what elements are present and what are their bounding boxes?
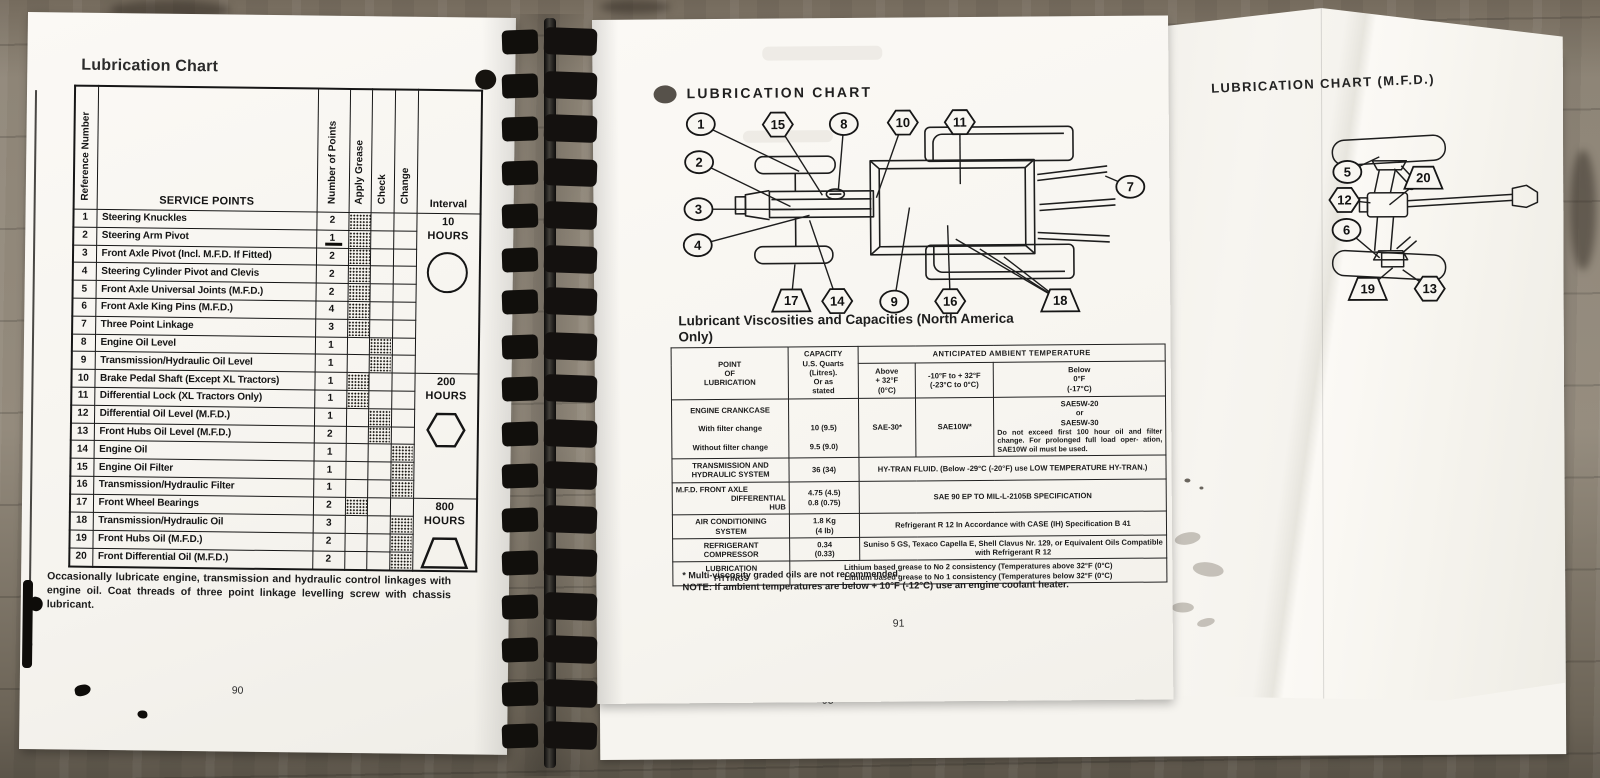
halftone-pattern — [349, 214, 370, 229]
check-cell — [370, 230, 393, 248]
callout-number-12: 12 — [1337, 192, 1352, 207]
number-of-points-cell: 4 — [315, 301, 347, 319]
callout-number-16: 16 — [943, 294, 958, 309]
halftone-pattern — [348, 321, 369, 336]
halftone-pattern — [348, 303, 369, 318]
binding-loop-left — [502, 637, 539, 662]
interval-cell: 200HOURS — [413, 373, 479, 498]
check-cell — [370, 213, 393, 231]
text-line: HYDRAULIC SYSTEM — [676, 470, 786, 480]
axle-callouts: 5201261913 — [1329, 157, 1445, 301]
paper-fold-crease — [1321, 8, 1324, 708]
text-line: Without filter change — [675, 442, 785, 452]
change-cell — [391, 373, 414, 391]
halftone-pattern — [390, 535, 411, 550]
check-cell — [367, 462, 390, 480]
col-header-reference-number: Reference Number — [74, 86, 99, 210]
lubricant-spec-cell: SAE 90 EP TO MIL-L-2105B SPECIFICATION — [859, 479, 1166, 514]
check-cell — [367, 515, 390, 533]
interval-cell: 800HOURS — [412, 498, 477, 571]
capacity-cell: 36 (34) — [789, 458, 859, 482]
capacities-table-wrap: POINTOFLUBRICATIONCAPACITYU.S. Quarts(Li… — [671, 344, 1168, 587]
check-cell — [369, 337, 392, 355]
photo-of-open-manual: { "left_page": { "title": "Lubrication C… — [0, 0, 1600, 778]
callout-number-19: 19 — [1360, 281, 1375, 296]
text-line: COMPRESSOR — [676, 550, 786, 560]
change-cell — [390, 516, 413, 534]
binding-loop — [502, 159, 598, 187]
left-page-footnote: Occasionally lubricate engine, transmiss… — [47, 570, 451, 617]
col-header-capacity: CAPACITYU.S. Quarts(Litres).Or asstated — [788, 346, 858, 399]
binding-loop — [502, 680, 598, 708]
callout-number-10: 10 — [896, 115, 911, 130]
binding-loop — [502, 202, 598, 230]
stain-speck — [1184, 478, 1190, 482]
binding-loop-left — [502, 595, 539, 620]
halftone-pattern — [370, 339, 391, 354]
grease-cell — [345, 462, 367, 480]
interval-circle-symbol — [427, 252, 468, 293]
text-line: 10 (9.5) — [792, 423, 855, 433]
change-cell — [390, 498, 413, 516]
halftone-pattern — [390, 553, 411, 568]
ref-number-cell: 15 — [70, 458, 93, 476]
grease-cell — [348, 212, 370, 230]
change-cell — [392, 355, 415, 373]
service-points-table-wrap: Reference Number SERVICE POINTS Number o… — [68, 85, 483, 573]
text-line: (0.33) — [793, 549, 856, 559]
cap-row: M.F.D. FRONT AXLEDIFFERENTIALHUB4.75 (4.… — [672, 479, 1166, 516]
manual-page-90: Lubrication Chart Reference Number SERVI… — [19, 12, 516, 755]
ref-number-cell: 17 — [70, 494, 93, 512]
binding-loop — [502, 506, 598, 534]
ref-number-cell: 10 — [71, 369, 94, 387]
service-points-table: Reference Number SERVICE POINTS Number o… — [68, 85, 483, 573]
leader-line — [698, 215, 810, 245]
binding-loop — [502, 722, 598, 750]
spiral-binding — [496, 14, 606, 776]
number-of-points-cell: 1 — [315, 354, 347, 372]
binding-loop-left — [502, 724, 539, 749]
grease-cell — [346, 408, 368, 426]
number-of-points-cell: 1 — [313, 461, 345, 479]
number-of-points-cell: 2 — [316, 265, 348, 283]
text-line: CAPACITY — [792, 349, 855, 359]
stain — [1172, 602, 1194, 612]
change-cell — [392, 320, 415, 338]
lubrication-point-cell: M.F.D. FRONT AXLEDIFFERENTIALHUB — [672, 482, 789, 516]
cap-row: ENGINE CRANKCASE With filter change With… — [671, 396, 1165, 459]
number-of-points-cell: 1 — [314, 390, 346, 408]
binding-loop-left — [502, 681, 539, 706]
page-number-90: 90 — [232, 685, 244, 697]
wood-knot — [600, 0, 670, 14]
col-header-apply-grease: Apply Grease — [349, 89, 373, 213]
change-cell — [391, 427, 414, 445]
binding-loop-left — [502, 463, 539, 488]
binding-loop — [502, 420, 598, 448]
lubrication-point-cell: TRANSMISSION ANDHYDRAULIC SYSTEM — [672, 458, 789, 482]
binding-loop-left — [502, 421, 539, 446]
foldout-title: LUBRICATION CHART (M.F.D.) — [1211, 71, 1435, 95]
interval-value: 10 — [417, 217, 480, 229]
ink-blot — [74, 683, 92, 697]
binding-loop-right — [544, 505, 598, 534]
number-of-points-cell: 2 — [315, 283, 347, 301]
halftone-pattern — [349, 232, 370, 247]
page-title: Lubrication Chart — [81, 57, 218, 77]
ref-number-cell: 20 — [69, 548, 92, 567]
number-of-points-cell: 2 — [312, 551, 344, 570]
callout-number-13: 13 — [1422, 281, 1437, 296]
check-cell — [367, 480, 390, 498]
text-line: -10°F to + 32°F — [919, 371, 990, 381]
capacity-cell: 1.8 Kg(4 lb) — [789, 514, 859, 538]
binding-loop-right — [544, 27, 598, 56]
ref-number-cell: 13 — [71, 423, 94, 441]
callout-number-3: 3 — [695, 202, 702, 217]
grease-cell — [347, 355, 369, 373]
grease-cell — [346, 390, 368, 408]
grease-cell — [346, 373, 368, 391]
ref-number-cell: 19 — [69, 530, 92, 548]
callout-number-1: 1 — [697, 117, 704, 132]
ref-number-cell: 9 — [72, 351, 95, 369]
note-text: NOTE: If ambient temperatures are below … — [682, 579, 1162, 595]
lubrication-point-cell: REFRIGERANTCOMPRESSOR — [673, 538, 790, 562]
ref-number-cell: 12 — [71, 405, 94, 423]
note-label: NOTE: — [682, 582, 712, 593]
grease-cell — [347, 319, 369, 337]
capacity-cell: 4.75 (4.5)0.8 (0.75) — [789, 481, 859, 514]
spec-paragraph: Do not exceed first 100 hour oil and fil… — [997, 427, 1162, 454]
ref-number-cell: 5 — [73, 280, 96, 298]
ref-number-cell: 8 — [72, 334, 95, 352]
tractor-callouts: 115810112347171491618 — [683, 109, 1146, 316]
service-point-cell: Front Differential Oil (M.F.D.) — [92, 548, 312, 569]
tractor-line-art — [735, 126, 1116, 281]
grease-cell — [347, 284, 369, 302]
binding-loop — [502, 115, 598, 143]
ref-number-cell: 18 — [70, 512, 93, 530]
binding-loop-right — [544, 332, 598, 361]
col-header-check: Check — [371, 89, 396, 213]
binding-loop-left — [502, 508, 539, 533]
interval-unit: HOURS — [413, 515, 476, 527]
callout-number-6: 6 — [1343, 222, 1350, 237]
temp-above-cell: SAE-30* — [858, 398, 915, 458]
text-line — [792, 433, 855, 443]
binding-loop-left — [502, 247, 539, 272]
change-cell — [393, 213, 416, 231]
number-of-points-cell: 2 — [316, 212, 348, 230]
grease-cell — [348, 248, 370, 266]
halftone-pattern — [348, 285, 369, 300]
ink-blot — [24, 640, 32, 649]
check-cell — [369, 302, 392, 320]
printed-dot — [475, 69, 496, 89]
binding-loop-left — [502, 116, 539, 141]
binding-loop-right — [544, 419, 598, 448]
lubrication-point-cell: AIR CONDITIONINGSYSTEM — [672, 514, 789, 538]
halftone-pattern — [345, 499, 366, 514]
text-line: HUB — [676, 503, 786, 513]
halftone-pattern — [348, 249, 369, 264]
grease-cell — [344, 551, 366, 570]
change-cell — [389, 534, 412, 552]
grease-cell — [346, 444, 368, 462]
binding-loop — [502, 549, 598, 577]
halftone-pattern — [391, 517, 412, 532]
interval-trapezoid-symbol — [418, 536, 470, 571]
change-cell — [392, 284, 415, 302]
callout-number-2: 2 — [695, 155, 702, 170]
grease-cell — [347, 337, 369, 355]
halftone-pattern — [391, 481, 412, 496]
grease-cell — [348, 266, 370, 284]
text-line: (-23°C to 0°C) — [919, 380, 990, 390]
binding-loop-right — [544, 245, 598, 274]
ref-number-cell: 4 — [73, 262, 96, 280]
binding-loop — [502, 375, 598, 403]
front-axle-line-art — [1332, 134, 1538, 281]
text-line: Above — [862, 367, 912, 377]
number-of-points-cell: 3 — [315, 319, 347, 337]
check-cell — [368, 444, 391, 462]
binding-loop-left — [502, 550, 539, 575]
ref-number-cell: 2 — [73, 227, 96, 245]
check-cell — [367, 497, 390, 515]
interval-value: 200 — [415, 377, 478, 389]
number-of-points-cell: 2 — [312, 533, 344, 551]
binding-loop — [502, 72, 598, 100]
interval-value: 800 — [413, 501, 476, 513]
temp-range-header-1: -10°F to + 32°F(-23°C to 0°C) — [915, 362, 993, 398]
number-of-points-cell: 1 — [314, 408, 346, 426]
text-line: stated — [792, 386, 855, 396]
change-cell — [392, 302, 415, 320]
number-of-points-cell: 1 — [314, 372, 346, 390]
change-cell — [390, 462, 413, 480]
binding-loop — [502, 246, 598, 274]
halftone-pattern — [369, 428, 390, 443]
number-of-points-cell: 2 — [316, 248, 348, 266]
lubricant-spec-cell: Refrigerant R 12 In Accordance with CASE… — [859, 511, 1166, 537]
text-line: 0.8 (0.75) — [793, 498, 856, 508]
text-line: ENGINE CRANKCASE — [675, 405, 785, 415]
ink-mark — [325, 243, 342, 246]
change-cell — [391, 444, 414, 462]
callout-number-20: 20 — [1416, 170, 1431, 185]
stain — [1174, 530, 1202, 546]
grease-cell — [347, 301, 369, 319]
stain-speck — [1199, 486, 1203, 489]
ink-blot — [137, 710, 147, 718]
number-of-points-cell: 3 — [313, 515, 345, 533]
halftone-pattern — [348, 267, 369, 282]
change-cell — [393, 266, 416, 284]
capacity-cell: 10 (9.5) 9.5 (9.0) — [788, 398, 858, 458]
capacity-cell: 0.34(0.33) — [790, 537, 860, 561]
binding-loop-right — [544, 679, 598, 708]
lubricant-spec-cell: HY-TRAN FLUID. (Below -29°C (-20°F) use … — [859, 455, 1166, 481]
binding-loop-right — [544, 287, 598, 316]
binding-loop — [502, 28, 598, 56]
callout-number-18: 18 — [1053, 293, 1068, 308]
halftone-pattern — [347, 392, 368, 407]
text-line: Or as — [792, 377, 855, 387]
halftone-pattern — [391, 464, 412, 479]
callout-number-14: 14 — [830, 294, 845, 309]
binding-loop — [502, 636, 598, 664]
check-cell — [366, 551, 389, 570]
text-line: 1.8 Kg — [793, 516, 856, 526]
col-header-change: Change — [394, 89, 419, 213]
temp-below-cell: SAE5W-20orSAE5W-30Do not exceed first 10… — [993, 396, 1165, 457]
callout-number-7: 7 — [1127, 179, 1134, 194]
text-line — [792, 414, 855, 424]
binding-loop-right — [544, 374, 598, 403]
change-cell — [392, 338, 415, 356]
text-line: (Litres). — [792, 368, 855, 378]
callout-number-8: 8 — [840, 116, 847, 131]
page-number-91: 91 — [893, 618, 905, 630]
check-cell — [368, 408, 391, 426]
binding-loop-left — [502, 161, 539, 186]
interval-hexagon-symbol — [423, 411, 467, 450]
binding-loop-right — [544, 158, 598, 187]
ref-number-cell: 3 — [73, 245, 96, 263]
number-of-points-cell: 1 — [315, 337, 347, 355]
note-body: If ambient temperatures are below + 10°F… — [715, 579, 1069, 593]
halftone-pattern — [369, 410, 390, 425]
binding-loop-right — [544, 635, 598, 664]
text-line: (-17°C) — [997, 383, 1162, 394]
check-cell — [369, 355, 392, 373]
table-header-row: Reference Number SERVICE POINTS Number o… — [74, 86, 482, 214]
capacities-heading: Lubricant Viscosities and Capacities (No… — [678, 311, 1014, 345]
text-line: 36 (34) — [793, 465, 856, 475]
check-cell — [370, 248, 393, 266]
col-header-number-of-points: Number of Points — [317, 89, 351, 213]
interval-unit: HOURS — [415, 391, 478, 403]
ref-number-cell: 11 — [71, 387, 94, 405]
asterisk-footnote: * Multi-viscosity graded oils are not re… — [682, 569, 900, 581]
stain — [1196, 616, 1215, 628]
callout-number-11: 11 — [953, 115, 967, 130]
text-line: + 32°F — [862, 376, 912, 386]
change-cell — [393, 249, 416, 267]
callout-number-5: 5 — [1344, 164, 1351, 179]
number-of-points-cell: 2 — [313, 497, 345, 515]
callout-number-4: 4 — [694, 238, 702, 253]
binding-loop-right — [544, 592, 598, 621]
change-cell — [393, 231, 416, 249]
number-of-points-cell: 2 — [314, 426, 346, 444]
change-cell — [390, 480, 413, 498]
interval-cell: 10HOURS — [415, 213, 481, 374]
grease-cell — [348, 230, 370, 248]
text-line: (0°C) — [862, 385, 912, 395]
number-of-points-cell: 1 — [313, 479, 345, 497]
text-line: 4.75 (4.5) — [793, 488, 856, 498]
binding-loop-left — [502, 203, 539, 228]
capacities-table: POINTOFLUBRICATIONCAPACITYU.S. Quarts(Li… — [671, 344, 1168, 587]
check-cell — [369, 319, 392, 337]
lubricant-spec-cell: Suniso 5 GS, Texaco Capella E, Shell Cla… — [860, 535, 1167, 561]
manual-page-91: LUBRICATION CHART 115810112347171491618 — [592, 15, 1173, 704]
col-header-interval: Interval — [417, 90, 483, 214]
text-line: 0.34 — [793, 540, 856, 550]
binding-loop-right — [544, 201, 598, 230]
ref-number-cell: 16 — [70, 476, 93, 494]
change-cell — [389, 552, 412, 571]
grease-cell — [346, 426, 368, 444]
tractor-lubrication-diagram: 115810112347171491618 — [657, 86, 1161, 322]
leader-line — [956, 238, 1060, 301]
temp-range-header-0: Above+ 32°F(0°C) — [858, 363, 915, 398]
check-cell — [368, 391, 391, 409]
binding-loop-right — [544, 721, 598, 750]
check-cell — [366, 533, 389, 551]
temp-range-header-2: Below0°F(-17°C) — [993, 361, 1165, 397]
callout-number-9: 9 — [891, 294, 898, 309]
grease-cell — [345, 515, 367, 533]
binding-loop — [502, 288, 598, 316]
grease-cell — [345, 479, 367, 497]
grease-cell — [345, 497, 367, 515]
text-line: U.S. Quarts — [792, 359, 855, 369]
ref-number-cell: 14 — [71, 440, 94, 458]
change-cell — [391, 391, 414, 409]
col-header-point-of-lubrication: POINTOFLUBRICATION — [671, 347, 788, 400]
halftone-pattern — [392, 446, 413, 461]
ref-number-cell: 1 — [73, 209, 96, 227]
text-line — [792, 405, 855, 415]
binding-loop-left — [502, 74, 539, 99]
change-cell — [391, 409, 414, 427]
binding-loop — [502, 333, 598, 361]
text-line: LUBRICATION — [675, 378, 785, 388]
bleed-through-shadow — [762, 46, 882, 61]
check-cell — [369, 284, 392, 302]
check-cell — [368, 426, 391, 444]
halftone-pattern — [347, 374, 368, 389]
ref-number-cell: 7 — [72, 316, 95, 334]
front-axle-diagram: 5201261913 — [1284, 124, 1565, 320]
ink-blot — [22, 580, 33, 668]
binding-loop-left — [502, 377, 539, 402]
binding-loop-right — [544, 461, 598, 490]
text-line: 9.5 (9.0) — [792, 442, 855, 452]
grease-cell — [344, 533, 366, 551]
text-line: (4 lb) — [793, 526, 856, 536]
binding-loop-right — [544, 71, 598, 100]
binding-loop — [502, 593, 598, 621]
interval-unit: HOURS — [417, 231, 480, 243]
binding-loop-left — [502, 334, 539, 359]
text-line: SYSTEM — [676, 526, 786, 536]
binding-loop-left — [502, 290, 539, 315]
binding-loop-right — [544, 114, 598, 143]
callout-number-15: 15 — [771, 117, 786, 132]
number-of-points-cell: 1 — [314, 443, 346, 461]
temp-mid-cell: SAE10W* — [915, 397, 993, 457]
wood-knot — [1570, 150, 1596, 270]
binding-loop — [502, 462, 598, 490]
ref-number-cell: 6 — [72, 298, 95, 316]
col-header-service-points: SERVICE POINTS — [97, 86, 318, 212]
